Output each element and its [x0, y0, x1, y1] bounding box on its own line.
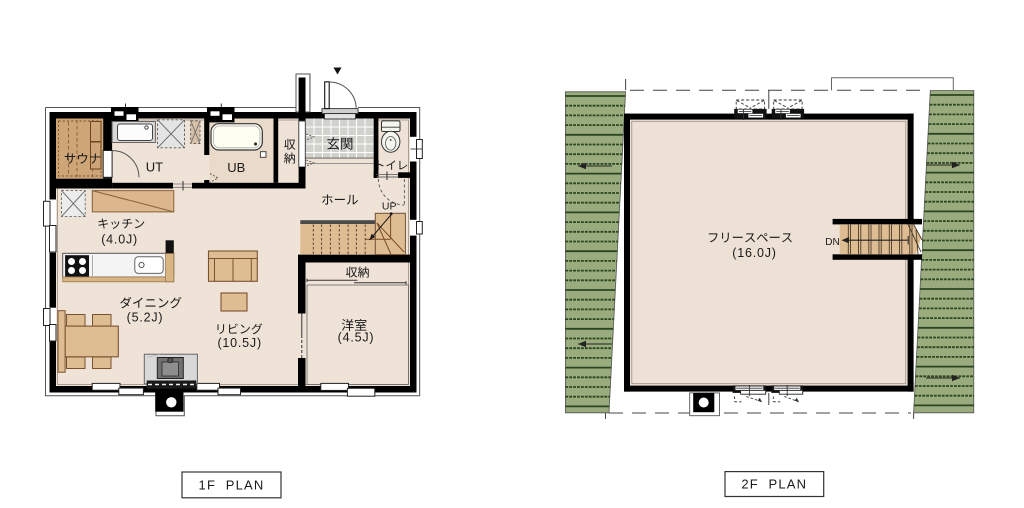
svg-text:(16.0J): (16.0J)	[732, 246, 777, 260]
svg-text:(4.0J): (4.0J)	[101, 232, 138, 246]
svg-text:(4.5J): (4.5J)	[338, 331, 375, 345]
svg-text:1F PLAN: 1F PLAN	[199, 478, 265, 493]
svg-text:UP: UP	[382, 201, 397, 213]
svg-text:UB: UB	[227, 160, 245, 175]
svg-text:(5.2J): (5.2J)	[127, 311, 164, 325]
svg-text:(10.5J): (10.5J)	[217, 336, 262, 350]
svg-text:UT: UT	[146, 159, 163, 174]
svg-text:2F PLAN: 2F PLAN	[741, 477, 807, 492]
svg-text:DN: DN	[825, 237, 839, 248]
